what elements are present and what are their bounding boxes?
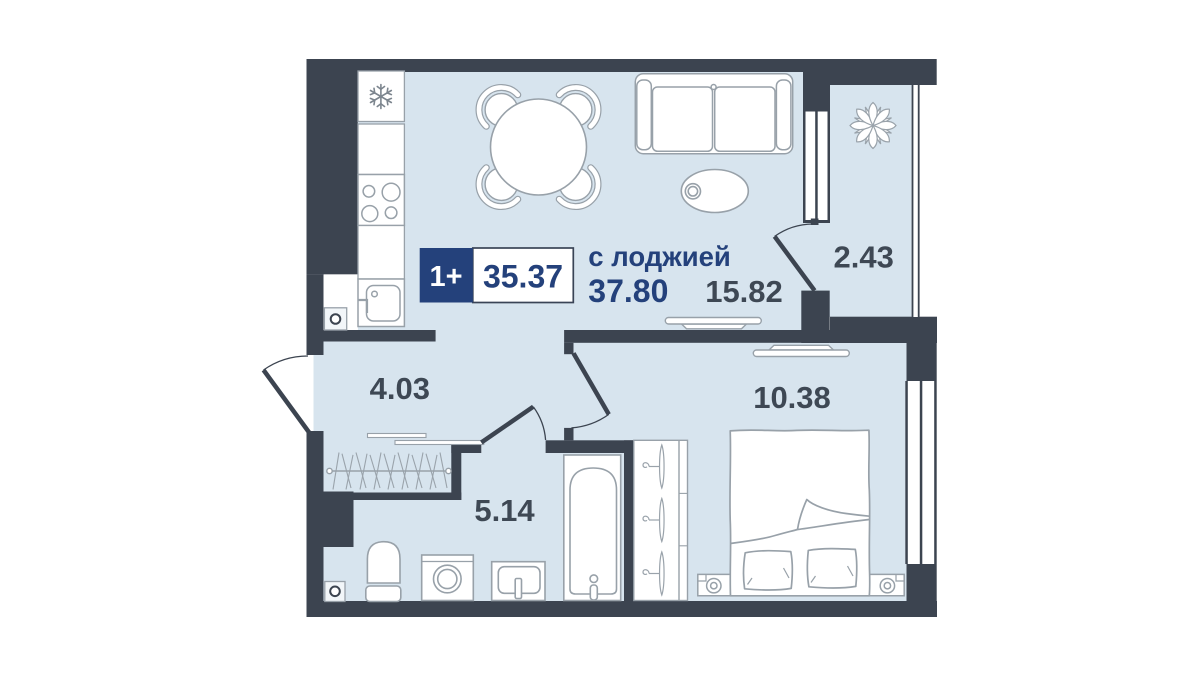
- svg-text:35.37: 35.37: [483, 259, 563, 295]
- svg-text:5.14: 5.14: [474, 493, 535, 528]
- svg-text:с лоджией: с лоджией: [588, 241, 731, 272]
- svg-text:37.80: 37.80: [588, 273, 668, 309]
- svg-text:15.82: 15.82: [705, 274, 783, 309]
- svg-text:4.03: 4.03: [370, 371, 430, 406]
- svg-text:10.38: 10.38: [753, 380, 831, 415]
- svg-text:2.43: 2.43: [834, 240, 894, 275]
- svg-text:1+: 1+: [429, 261, 462, 293]
